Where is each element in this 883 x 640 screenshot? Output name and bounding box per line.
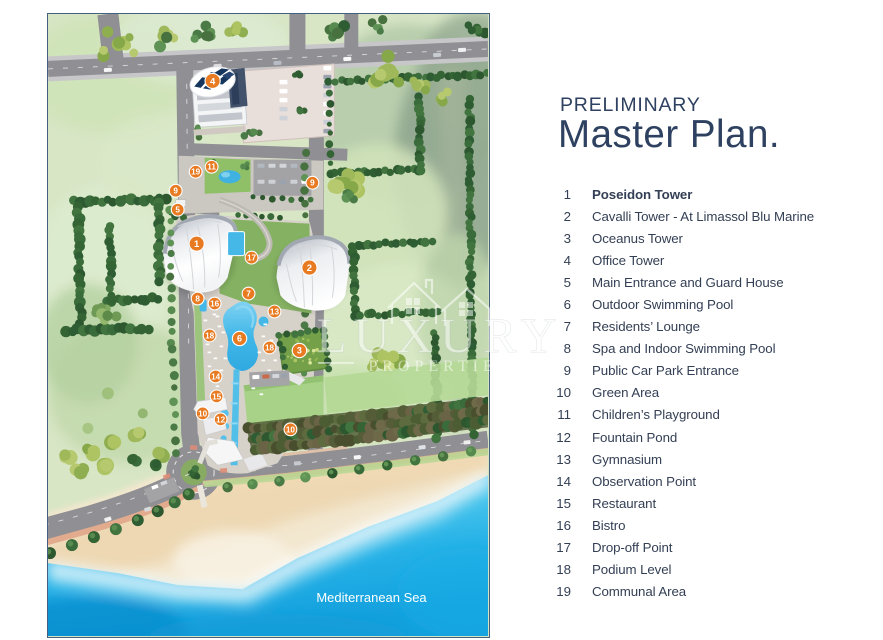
svg-text:10: 10 (198, 409, 208, 418)
svg-text:3: 3 (297, 346, 302, 356)
svg-text:6: 6 (237, 334, 242, 344)
svg-text:8: 8 (195, 294, 200, 303)
svg-text:13: 13 (270, 307, 280, 316)
svg-text:4: 4 (210, 76, 216, 87)
svg-text:5: 5 (175, 206, 180, 215)
svg-text:18: 18 (205, 331, 215, 340)
svg-text:11: 11 (207, 163, 216, 172)
svg-text:1: 1 (194, 239, 199, 250)
svg-text:16: 16 (210, 299, 220, 308)
svg-text:14: 14 (211, 372, 221, 381)
svg-text:19: 19 (191, 168, 201, 177)
svg-text:Mediterranean Sea: Mediterranean Sea (316, 590, 427, 605)
svg-text:10: 10 (286, 425, 296, 434)
svg-text:2: 2 (307, 263, 312, 274)
svg-text:12: 12 (216, 415, 226, 424)
svg-text:7: 7 (246, 289, 251, 298)
svg-text:15: 15 (212, 392, 222, 401)
svg-text:9: 9 (310, 179, 315, 188)
svg-text:17: 17 (247, 254, 257, 263)
svg-text:18: 18 (265, 343, 275, 352)
svg-text:9: 9 (173, 187, 178, 196)
